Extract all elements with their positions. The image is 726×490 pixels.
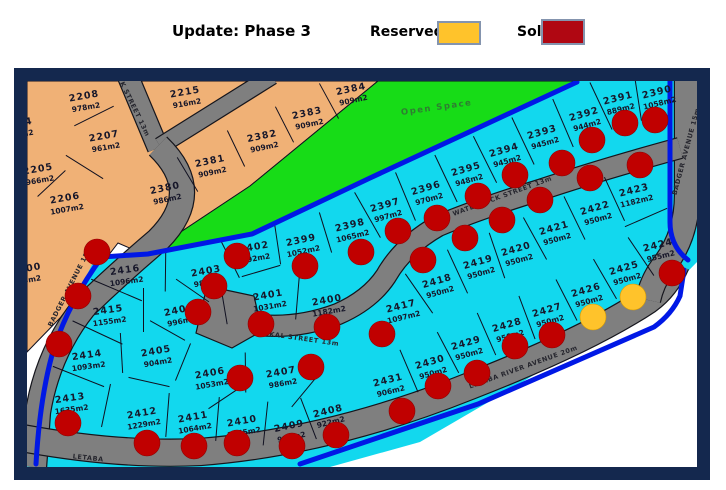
sold-marker	[314, 314, 340, 340]
sold-marker	[227, 365, 253, 391]
sold-marker	[248, 311, 274, 337]
sold-marker	[452, 225, 478, 251]
sold-marker	[298, 354, 324, 380]
sold-marker	[489, 207, 515, 233]
phase3-update-page: Update: Phase 3 Reserved Sold Open Space…	[0, 0, 726, 490]
sold-marker	[549, 150, 575, 176]
sold-marker	[502, 162, 528, 188]
sold-marker	[292, 253, 318, 279]
sold-marker	[539, 322, 565, 348]
sold-marker	[612, 110, 638, 136]
sold-marker	[55, 410, 81, 436]
sold-marker	[464, 360, 490, 386]
sold-marker	[46, 331, 72, 357]
sold-marker	[465, 183, 491, 209]
sold-marker	[627, 152, 653, 178]
parcel-line	[165, 250, 166, 292]
sold-marker	[424, 205, 450, 231]
sold-marker	[181, 433, 207, 459]
sold-marker	[201, 273, 227, 299]
subdivision-map: Open SpaceK STREET 13mBADGER AVENUE 15mB…	[0, 0, 726, 490]
sold-marker	[84, 239, 110, 265]
sold-marker	[389, 398, 415, 424]
sold-marker	[224, 430, 250, 456]
sold-marker	[425, 373, 451, 399]
reserved-marker	[580, 304, 606, 330]
sold-marker	[279, 433, 305, 459]
sold-marker	[134, 430, 160, 456]
map-content: Open SpaceK STREET 13mBADGER AVENUE 15mB…	[17, 69, 702, 467]
sold-marker	[65, 283, 91, 309]
sold-marker	[659, 260, 685, 286]
sold-marker	[410, 247, 436, 273]
sold-marker	[323, 422, 349, 448]
sold-marker	[502, 333, 528, 359]
sold-marker	[579, 127, 605, 153]
sold-marker	[224, 243, 250, 269]
sold-marker	[369, 321, 395, 347]
sold-marker	[348, 239, 374, 265]
sold-marker	[642, 107, 668, 133]
sold-marker	[185, 299, 211, 325]
sold-marker	[577, 165, 603, 191]
reserved-marker	[620, 284, 646, 310]
sold-marker	[385, 218, 411, 244]
sold-marker	[527, 187, 553, 213]
